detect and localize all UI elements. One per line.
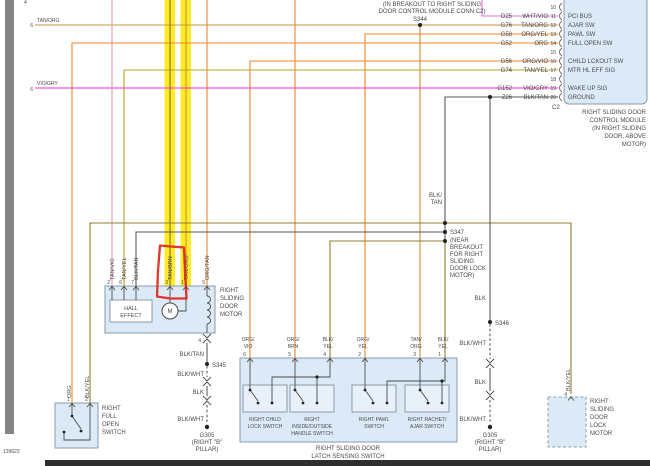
wire-id: Z26 [502, 95, 513, 101]
c2-pin-bracket-arcs [560, 3, 563, 101]
c2-pin: 11 [551, 14, 556, 20]
splice-s344-dot [418, 23, 422, 27]
c2-signal: WAKE UP SIG [568, 86, 608, 92]
wire-label: BLK/ [323, 337, 334, 343]
switch-label: RIGHT CHILD [249, 417, 281, 423]
c2-signal: PCI BUS [568, 14, 592, 20]
wire-label: YEL [438, 344, 448, 350]
c2-pin: 14 [550, 41, 556, 47]
switch-label: RIGHT RACHET/ [408, 417, 447, 423]
component-label: SLIDING [590, 407, 614, 413]
component-label: LOCK [590, 423, 606, 429]
wire-label: YEL [323, 344, 333, 350]
splice-note: DOOR LOCK [450, 266, 486, 272]
connector-symbols [69, 3, 574, 407]
wire-label: BLK [475, 380, 486, 386]
pawl-switch-box [352, 385, 396, 412]
ground-label: G305 [483, 433, 498, 439]
wire-label: BLK/WHT [459, 417, 486, 423]
wire-color: ORG [534, 41, 548, 47]
wire-label: ORG [410, 344, 422, 350]
c2-pin: 17 [550, 68, 556, 74]
wire-label: BLK/TAN [179, 352, 204, 358]
module-label: MOTOR) [622, 142, 646, 148]
c2-pin: 10 [550, 5, 556, 11]
module-label: (IN RIGHT SLIDING [592, 126, 646, 132]
switch-label: RIGHT PAWL [359, 417, 390, 423]
breakout-note-line2: DOOR CONTROL MODULE CONN C2) [379, 9, 486, 15]
wire-label: VIO/GRY [37, 81, 58, 87]
yellow-highlight-marks [165, 0, 192, 292]
component-label: DOOR [590, 415, 609, 421]
pin-label: 6 [30, 87, 33, 93]
junction-dot [488, 95, 492, 99]
splice-note: (NEAR [450, 238, 469, 244]
component-boxes [55, 0, 647, 448]
splice-note: FOR RIGHT [450, 252, 483, 258]
splice-note: BREAKOUT [450, 245, 483, 251]
module-label: DOOR, ABOVE [604, 134, 646, 140]
pin-label: 2 [358, 352, 361, 358]
wire-label: BLK/TAN [134, 257, 140, 280]
wire-label: VIO [244, 344, 253, 350]
component-label: RIGHT [590, 399, 609, 405]
switch-label: INSIDE/OUTSIDE [292, 424, 333, 430]
c2-pin: 18 [550, 77, 556, 83]
pin-label: 3 [413, 352, 416, 358]
wire-id: G56 [501, 59, 513, 65]
component-label: RIGHT [102, 406, 121, 412]
wiring-diagram-page: 4 TAN/ORG 6 VIO/GRY 6 (IN BREAKOUT TO RI… [0, 0, 650, 466]
wire-label: ORG [67, 385, 73, 398]
wire-color: TAN/ORG [521, 23, 548, 29]
wire-label: TAN/BRN [168, 256, 174, 280]
splice-s347-dot [443, 230, 447, 234]
wire-color: VIO/GRY [523, 86, 548, 92]
wire-label: ORG/ [357, 337, 370, 343]
switch-label: LOCK SWITCH [248, 424, 283, 430]
hall-effect-label: HALL [124, 306, 138, 312]
scan-edge-bar [5, 0, 14, 434]
wire-color: WHT/VIO [522, 14, 548, 20]
c2-signal: FULL OPEN SW [568, 41, 613, 47]
c2-signal: MTR HL EFF SIG [568, 68, 615, 74]
component-label: RIGHT [220, 288, 239, 294]
component-label: LATCH SENSING SWITCH [311, 454, 384, 460]
c2-pin: 15 [550, 50, 556, 56]
component-label: MOTOR [220, 312, 243, 318]
wire-label: TAN/ [410, 337, 422, 343]
c2-pin: 12 [550, 23, 556, 29]
wire-label: ORG/TAN [205, 255, 211, 280]
wiring-diagram-canvas: 4 TAN/ORG 6 VIO/GRY 6 (IN BREAKOUT TO RI… [0, 0, 650, 466]
component-label: FULL [102, 414, 117, 420]
ground-g305-left-dot [205, 425, 209, 429]
wire-label: BLK [193, 390, 204, 396]
wire-label: BLK/WHT [177, 372, 204, 378]
wire-color: BLK/TAN [523, 95, 548, 101]
component-label: DOOR [220, 304, 239, 310]
wire-label: ORG/ [287, 337, 300, 343]
wire-id: G52 [501, 41, 513, 47]
splice-note: MOTOR) [450, 273, 474, 279]
c2-pin: 19 [550, 86, 556, 92]
ground-label: PILLAR) [479, 447, 502, 453]
switch-label: SWITCH [364, 424, 384, 430]
splice-s347-dot [443, 221, 447, 225]
splice-s347-dot [443, 239, 447, 243]
splice-s346-label: S346 [495, 321, 510, 327]
wire-label: TAN/ORG [37, 18, 60, 24]
pin-label: 6 [30, 23, 33, 29]
c2-signal: CHILD LCKOUT SW [568, 59, 624, 65]
wire-id: G152 [497, 86, 512, 92]
c2-pin: 16 [550, 59, 556, 65]
wire-label: TAN/YEL [122, 257, 128, 280]
c2-signal: PAWL SW [568, 32, 596, 38]
c2-signal: AJAR SW [568, 23, 595, 29]
wire-id: G74 [501, 68, 513, 74]
c2-pin: 20 [550, 95, 556, 101]
splice-s345-label: S345 [212, 363, 227, 369]
wire-label: BRN [288, 344, 299, 350]
wire-label: BLK/YEL [566, 369, 572, 391]
c2-signal: GROUND [568, 95, 595, 101]
pin-label: 1 [438, 352, 441, 358]
pin-label: 4 [198, 338, 201, 344]
splice-s344-label: S344 [413, 17, 428, 23]
component-label: SWITCH [102, 430, 126, 436]
module-label: RIGHT SLIDING DOOR [582, 110, 647, 116]
wire-label: TAN [430, 200, 442, 206]
component-label: RIGHT SLIDING DOOR [316, 446, 381, 452]
ground-label: (RIGHT "B" [192, 440, 222, 446]
wire-color: ORG/VIO [522, 59, 548, 65]
wire-label: ORG/ [242, 337, 255, 343]
c2-pin: 13 [550, 32, 556, 38]
ground-g305-right-dot [488, 425, 492, 429]
component-label: SLIDING [220, 296, 244, 302]
wire-id: D25 [501, 14, 513, 20]
door-lock-motor-box [548, 397, 586, 447]
switch-label: HANDLE SWITCH [291, 431, 333, 437]
wire-id: G58 [501, 32, 513, 38]
breakout-note-line1: (IN BREAKOUT TO RIGHT SLIDING [383, 2, 482, 8]
switch-label: RIGHT [304, 417, 320, 423]
wire-label: BLK/YEL [85, 376, 91, 398]
bottom-scan-bar [45, 460, 650, 466]
pin-label: 4 [323, 352, 326, 358]
document-number: 139623 [3, 449, 20, 455]
wire-label: BLK/ [438, 337, 449, 343]
ground-label: G305 [200, 433, 215, 439]
handle-switch-box [290, 385, 334, 412]
module-label: CONTROL MODULE [590, 118, 646, 124]
pin-label: 5 [288, 352, 291, 358]
ground-label: PILLAR) [196, 447, 219, 453]
wire-color: TAN/YEL [523, 68, 548, 74]
wire-label: YEL [358, 344, 368, 350]
ground-label: (RIGHT "B" [475, 440, 505, 446]
splice-s346-dot [488, 320, 492, 324]
pin-label: 4 [564, 392, 567, 398]
wire-id: G76 [501, 23, 513, 29]
full-open-switch-box [55, 403, 98, 448]
wire-label: BLK/WHT [459, 341, 486, 347]
component-label: MOTOR [590, 431, 613, 437]
cut-pin-label: 4 [24, 0, 27, 6]
wire-blk-tan-group [136, 97, 558, 286]
splice-s345-dot [205, 362, 209, 366]
wire-color: ORG/YEL [521, 32, 548, 38]
motor-m-label: M [168, 309, 173, 315]
hall-effect-label: EFFECT [120, 313, 142, 319]
wire-label: BLK [475, 296, 486, 302]
c2-designator: C2 [552, 105, 560, 111]
component-label: OPEN [102, 422, 119, 428]
pin-label: 6 [243, 352, 246, 358]
wire-label: BLK/ [429, 193, 442, 199]
wire-label: BLK/WHT [177, 417, 204, 423]
splice-note: SLIDING [450, 259, 474, 265]
wire-label: TAN/VIO [110, 258, 116, 280]
splice-s347-label: S347 [450, 230, 465, 236]
switch-label: AJAR SWITCH [410, 424, 444, 430]
